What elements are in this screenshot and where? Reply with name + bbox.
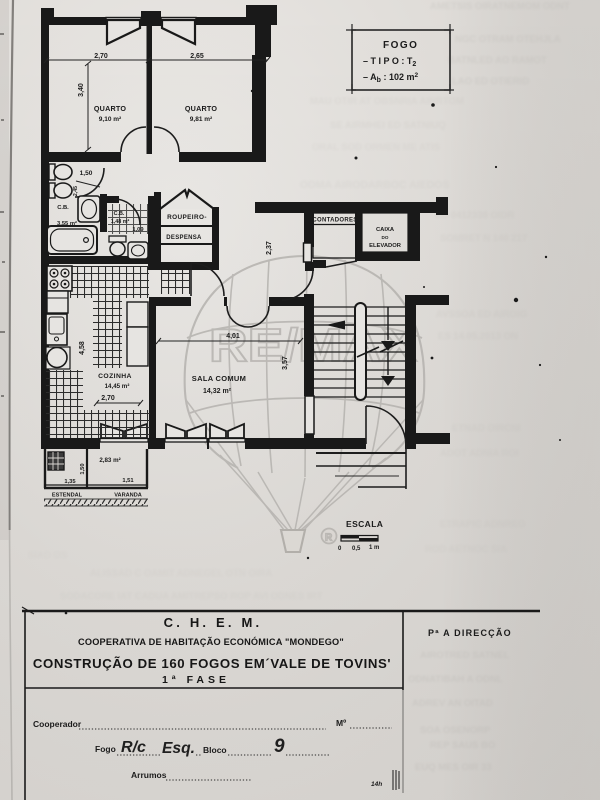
svg-text:3,57: 3,57 xyxy=(282,356,289,370)
svg-text:2,37: 2,37 xyxy=(266,241,273,255)
svg-text:ELEVADOR: ELEVADOR xyxy=(369,243,402,249)
svg-text:4,01: 4,01 xyxy=(226,333,240,340)
svg-text:C.B.: C.B. xyxy=(114,211,125,217)
svg-text:MAU OTIR AT OBSNRIA AINRTOM: MAU OTIR AT OBSNRIA AINRTOM xyxy=(310,96,464,107)
svg-text:R: R xyxy=(325,533,333,544)
svg-text:ESTENDAL: ESTENDAL xyxy=(52,493,83,499)
svg-text:SALA COMUM: SALA COMUM xyxy=(192,374,246,383)
svg-text:Pª A DIRECÇÃO: Pª A DIRECÇÃO xyxy=(428,628,512,638)
svg-text:Bloco: Bloco xyxy=(203,745,227,755)
svg-text:1,51: 1,51 xyxy=(122,478,134,484)
svg-text:C.B.: C.B. xyxy=(57,205,69,211)
svg-text:ADREV AN OITAD: ADREV AN OITAD xyxy=(412,698,493,709)
svg-text:FOGO: FOGO xyxy=(383,40,418,51)
svg-text:4,58: 4,58 xyxy=(79,341,86,355)
svg-text:1ª FASE: 1ª FASE xyxy=(162,674,230,686)
svg-text:CONSTRUÇÃO DE 160 FOGOS EM´VAL: CONSTRUÇÃO DE 160 FOGOS EM´VALE DE TOVIN… xyxy=(33,656,391,671)
svg-text:3,40: 3,40 xyxy=(78,83,85,97)
svg-text:14,45 m²: 14,45 m² xyxy=(105,383,130,390)
svg-text:1 m: 1 m xyxy=(369,545,379,551)
svg-text:REP SAUS BO: REP SAUS BO xyxy=(430,740,495,751)
svg-text:AIROTRED SATNEL: AIROTRED SATNEL xyxy=(420,650,510,661)
svg-text:ETNAD OIRCNI: ETNAD OIRCNI xyxy=(452,423,521,434)
svg-text:DESPENSA: DESPENSA xyxy=(166,235,202,241)
svg-text:ROD AETNOC SIA: ROD AETNOC SIA xyxy=(425,544,507,555)
svg-text:NGC OTRAM OTEHJLA: NGC OTRAM OTEHJLA xyxy=(455,34,561,45)
svg-text:ROUPEIRO-: ROUPEIRO- xyxy=(167,214,207,221)
svg-text:14,32 m²: 14,32 m² xyxy=(203,388,232,395)
svg-text:2,83 m²: 2,83 m² xyxy=(99,457,120,464)
svg-text:VARANDA: VARANDA xyxy=(114,493,142,499)
svg-text:ALISSAD C OAMIT ADNEGEL OTN OI: ALISSAD C OAMIT ADNEGEL OTN OIRA xyxy=(90,568,272,579)
svg-text:ETRAPIC ADNREO: ETRAPIC ADNREO xyxy=(440,519,525,530)
svg-text:AMETSIS OIRATNEMOM ODNT: AMETSIS OIRATNEMOM ODNT xyxy=(430,1,570,12)
svg-text:COZINHA: COZINHA xyxy=(98,373,132,380)
svg-text:0,5: 0,5 xyxy=(352,546,361,552)
svg-text:EUQ MES OIR 33: EUQ MES OIR 33 xyxy=(415,762,492,773)
svg-text:9: 9 xyxy=(274,736,285,757)
svg-text:14h: 14h xyxy=(371,781,382,788)
svg-text:Arrumos: Arrumos xyxy=(131,770,167,780)
svg-text:Fogo: Fogo xyxy=(95,744,116,754)
svg-text:SODACORE IAT CADUA AMITREPSO R: SODACORE IAT CADUA AMITREPSO ROP AVI ODN… xyxy=(60,591,323,602)
svg-text:9,81 m²: 9,81 m² xyxy=(190,116,213,123)
svg-text:AVSSOA ED AIROIG: AVSSOA ED AIROIG xyxy=(436,309,527,320)
svg-text:ESCALA: ESCALA xyxy=(346,519,383,529)
svg-text:2,70: 2,70 xyxy=(101,395,115,402)
svg-text:2,65: 2,65 xyxy=(190,53,204,60)
svg-text:QUARTO: QUARTO xyxy=(94,104,126,113)
svg-text:BATNLED AO RAMOT: BATNLED AO RAMOT xyxy=(448,55,547,66)
svg-text:DO: DO xyxy=(382,235,389,240)
svg-text:1,09: 1,09 xyxy=(132,227,144,233)
svg-text:QUARTO: QUARTO xyxy=(185,104,217,113)
svg-text:CAIXA: CAIXA xyxy=(376,227,395,233)
svg-text:SIAD OS: SIAD OS xyxy=(28,550,67,561)
svg-text:ADOT ADNIA ROI: ADOT ADNIA ROI xyxy=(440,448,518,459)
svg-text:1,35: 1,35 xyxy=(64,479,76,485)
svg-text:CONTADORES: CONTADORES xyxy=(312,218,357,224)
svg-text:Mº: Mº xyxy=(336,718,346,728)
svg-text:ORAL SOD ORMEN ME ATIS: ORAL SOD ORMEN ME ATIS xyxy=(312,142,440,153)
svg-text:9,10 m²: 9,10 m² xyxy=(99,116,122,123)
svg-text:Cooperador: Cooperador xyxy=(33,719,82,729)
svg-text:3,55 m²: 3,55 m² xyxy=(57,220,77,227)
svg-text:SOMRET N 140 217: SOMRET N 140 217 xyxy=(440,233,527,244)
svg-text:COOPERATIVA DE HABITAÇÃO ECONÓ: COOPERATIVA DE HABITAÇÃO ECONÓMICA "MOND… xyxy=(78,636,344,647)
svg-text:2,45: 2,45 xyxy=(73,186,79,196)
svg-text:R/c: R/c xyxy=(121,739,146,756)
svg-text:Esq.: Esq. xyxy=(162,740,195,757)
svg-text:SOA OSENORP: SOA OSENORP xyxy=(420,725,491,736)
svg-text:1,48 m²: 1,48 m² xyxy=(111,219,130,225)
svg-text:1,50: 1,50 xyxy=(80,463,86,474)
svg-text:C. H. E. M.: C. H. E. M. xyxy=(164,615,263,630)
svg-text:1,50: 1,50 xyxy=(80,170,93,177)
svg-text:ODMA AIRODARBOC AIEDOS: ODMA AIRODARBOC AIEDOS xyxy=(300,179,449,191)
svg-text:2,70: 2,70 xyxy=(94,53,108,60)
svg-text:SE AIRMHEI ED SATNIUQ: SE AIRMHEI ED SATNIUQ xyxy=(330,120,446,131)
svg-text:ODNATIBAH A ODNL: ODNATIBAH A ODNL xyxy=(408,674,503,685)
svg-text:LAO ED OTIERID: LAO ED OTIERID xyxy=(452,76,529,87)
svg-text:ES 14.05.2013 ON: ES 14.05.2013 ON xyxy=(438,331,518,342)
